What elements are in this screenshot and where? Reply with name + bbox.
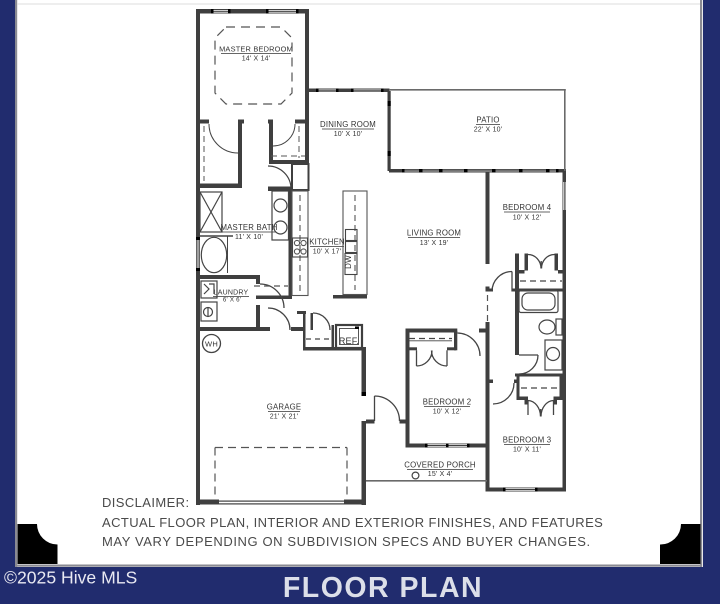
svg-text:LIVING ROOM: LIVING ROOM: [407, 229, 461, 238]
svg-text:PATIO: PATIO: [476, 116, 499, 125]
svg-text:15' X 4': 15' X 4': [428, 471, 453, 478]
svg-text:10' X 10': 10' X 10': [334, 131, 363, 138]
svg-text:GARAGE: GARAGE: [267, 403, 302, 412]
svg-text:10' X 11': 10' X 11': [513, 447, 541, 454]
svg-text:COVERED PORCH: COVERED PORCH: [404, 461, 475, 470]
svg-text:MASTER BEDROOM: MASTER BEDROOM: [219, 45, 293, 54]
svg-text:MASTER BATH: MASTER BATH: [220, 223, 277, 232]
svg-text:DISCLAIMER:: DISCLAIMER:: [102, 495, 189, 510]
svg-text:11' X 10': 11' X 10': [235, 234, 263, 241]
svg-text:BEDROOM 3: BEDROOM 3: [503, 436, 552, 445]
svg-text:DINING ROOM: DINING ROOM: [320, 120, 376, 129]
svg-text:FLOOR PLAN: FLOOR PLAN: [283, 572, 483, 604]
svg-text:10' X 12': 10' X 12': [513, 215, 542, 222]
svg-text:MAY VARY DEPENDING ON SUBDIVIS: MAY VARY DEPENDING ON SUBDIVISION SPECS …: [102, 534, 591, 549]
svg-text:KITCHEN: KITCHEN: [309, 238, 345, 247]
svg-text:21' X 21': 21' X 21': [270, 414, 299, 421]
svg-text:BEDROOM 2: BEDROOM 2: [423, 398, 472, 407]
svg-text:13' X 19': 13' X 19': [420, 240, 449, 247]
svg-text:BEDROOM 4: BEDROOM 4: [503, 203, 552, 212]
svg-text:14' X 14': 14' X 14': [242, 56, 271, 63]
svg-text:WH: WH: [205, 340, 218, 349]
svg-text:10' X 17': 10' X 17': [313, 249, 342, 256]
svg-text:22' X 10': 22' X 10': [474, 127, 503, 134]
svg-text:6' X 6': 6' X 6': [223, 297, 241, 304]
svg-text:©2025 Hive MLS: ©2025 Hive MLS: [4, 568, 137, 588]
svg-text:10' X 12': 10' X 12': [433, 409, 462, 416]
svg-text:LAUNDRY: LAUNDRY: [214, 290, 249, 297]
svg-text:ACTUAL FLOOR PLAN, INTERIOR AN: ACTUAL FLOOR PLAN, INTERIOR AND EXTERIOR…: [102, 515, 603, 530]
